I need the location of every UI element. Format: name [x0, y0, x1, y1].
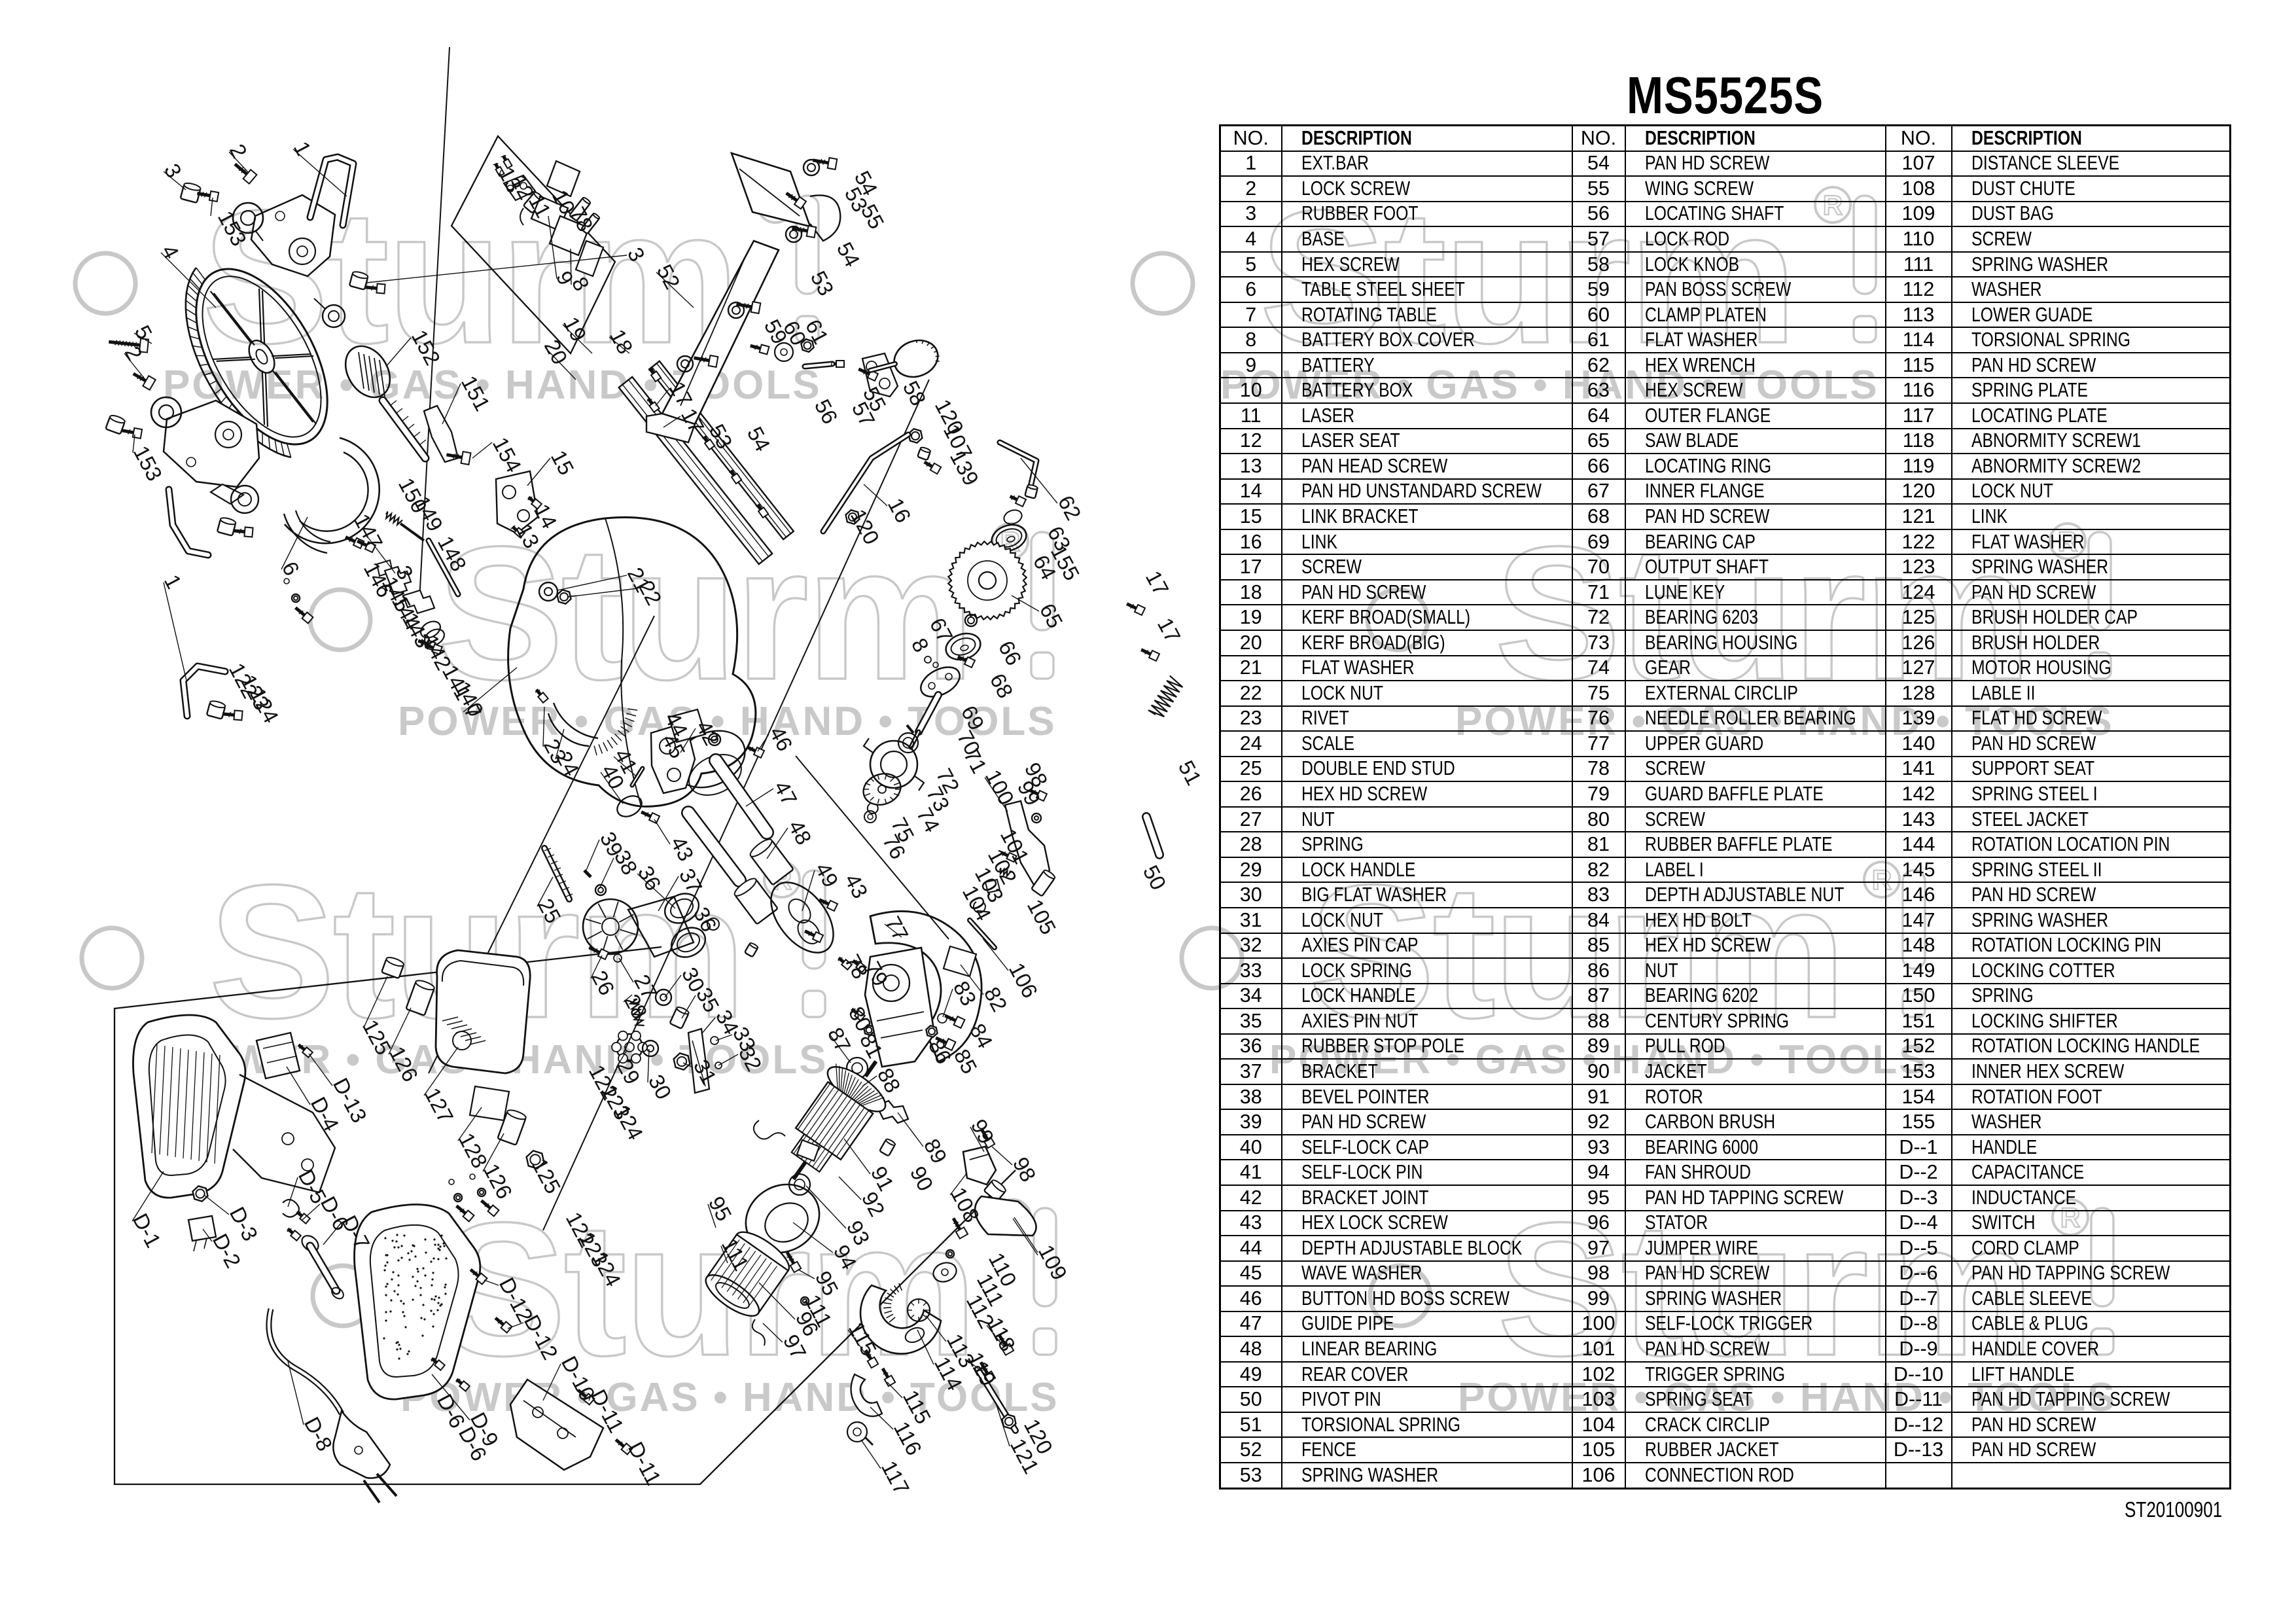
svg-text:66: 66 [994, 637, 1027, 669]
svg-text:4: 4 [157, 241, 184, 263]
svg-text:58: 58 [898, 377, 931, 410]
svg-text:117: 117 [877, 1457, 914, 1499]
svg-text:15: 15 [546, 446, 579, 479]
svg-text:1: 1 [160, 571, 186, 593]
svg-text:53: 53 [806, 267, 839, 300]
svg-text:54: 54 [743, 423, 775, 455]
svg-text:83: 83 [949, 977, 981, 1010]
svg-text:77: 77 [881, 912, 913, 945]
svg-text:D-1: D-1 [128, 1209, 166, 1251]
svg-text:49: 49 [811, 859, 843, 891]
svg-text:47: 47 [769, 777, 802, 810]
svg-text:17: 17 [1141, 567, 1174, 599]
svg-text:153: 153 [129, 442, 168, 485]
svg-text:D-11: D-11 [624, 1438, 666, 1489]
svg-text:2: 2 [225, 140, 252, 162]
svg-text:68: 68 [985, 669, 1018, 702]
svg-text:127: 127 [420, 1084, 459, 1127]
svg-text:82: 82 [980, 983, 1012, 1016]
svg-text:109: 109 [1034, 1241, 1072, 1284]
svg-text:1: 1 [289, 137, 316, 160]
svg-text:62: 62 [1053, 491, 1086, 524]
svg-text:89: 89 [919, 1135, 952, 1168]
svg-text:54: 54 [832, 238, 865, 271]
svg-text:17: 17 [1153, 614, 1186, 647]
svg-text:98: 98 [1008, 1153, 1041, 1186]
svg-text:48: 48 [784, 816, 817, 849]
svg-text:65: 65 [1035, 599, 1068, 632]
svg-text:105: 105 [1023, 895, 1061, 938]
svg-text:51: 51 [1174, 757, 1207, 789]
svg-text:154: 154 [488, 433, 527, 476]
svg-text:43: 43 [840, 870, 873, 902]
svg-text:D-8: D-8 [300, 1413, 338, 1455]
svg-text:3: 3 [160, 160, 186, 182]
svg-text:50: 50 [1139, 861, 1171, 894]
svg-text:106: 106 [1004, 959, 1043, 1002]
